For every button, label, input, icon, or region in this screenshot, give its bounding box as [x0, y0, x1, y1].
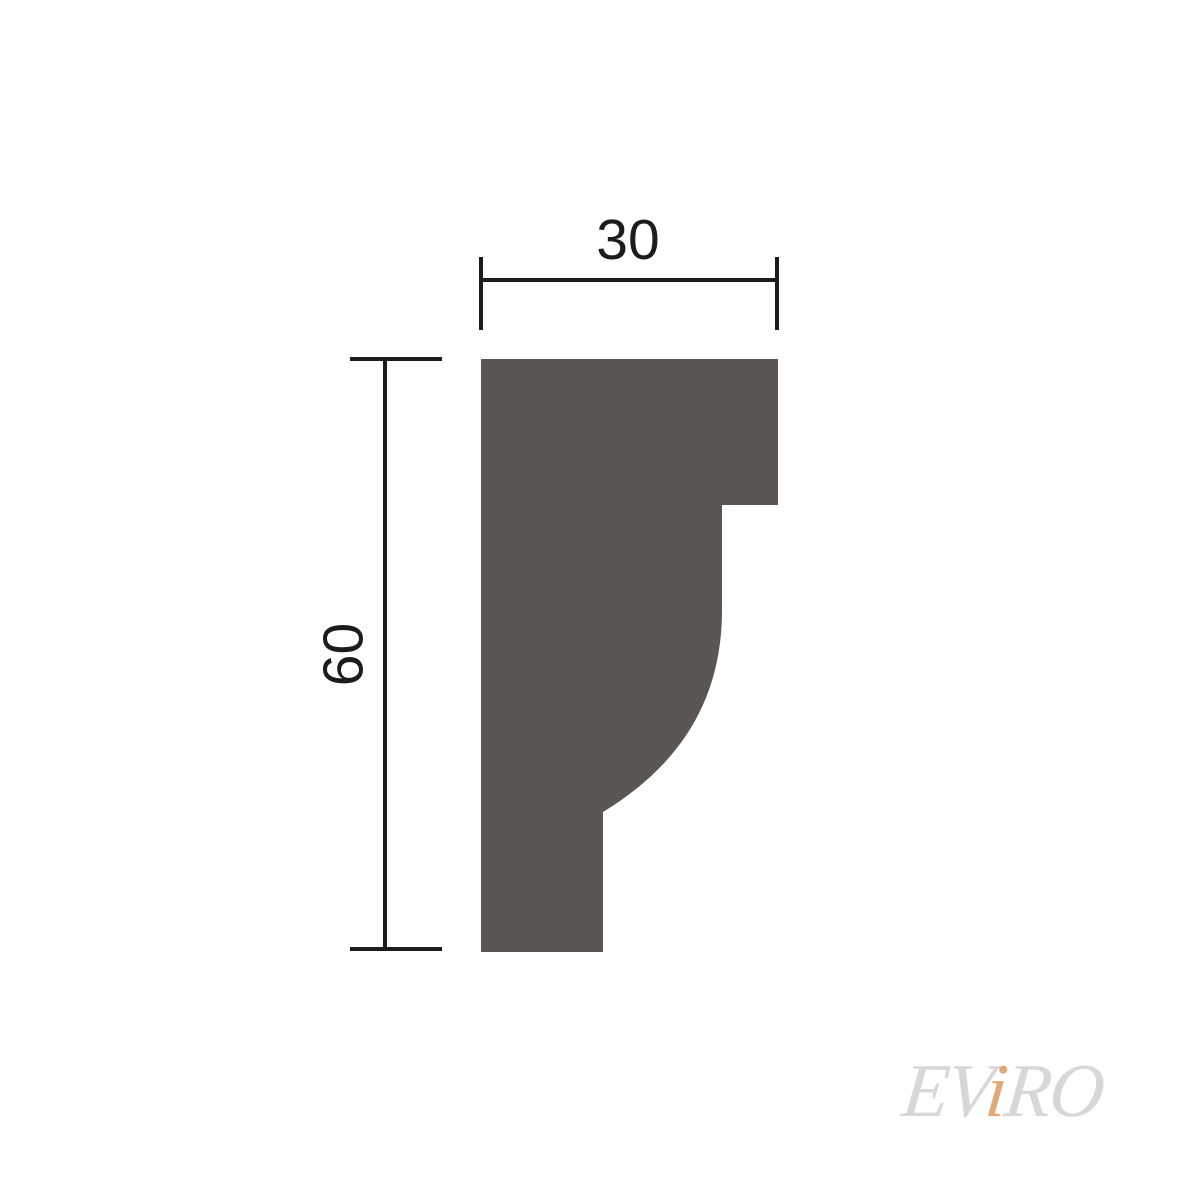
- width-dimension-right-tick: [775, 257, 779, 330]
- molding-dimension-diagram: 30 60 EViRO: [0, 0, 1182, 1182]
- width-dimension-line: [481, 278, 777, 282]
- watermark-text-ro: RO: [1001, 1049, 1107, 1133]
- molding-profile-path: [481, 359, 778, 952]
- height-dimension-bottom-tick: [350, 947, 442, 951]
- height-dimension-line: [383, 359, 387, 951]
- watermark-text-ev: EV: [899, 1049, 991, 1133]
- brand-watermark: EViRO: [899, 1053, 1107, 1129]
- width-dimension-value: 30: [558, 212, 698, 269]
- height-dimension-value: 60: [316, 585, 373, 725]
- height-dimension-top-tick: [350, 357, 442, 361]
- width-dimension-left-tick: [479, 257, 483, 330]
- molding-profile-shape: [0, 0, 1182, 1182]
